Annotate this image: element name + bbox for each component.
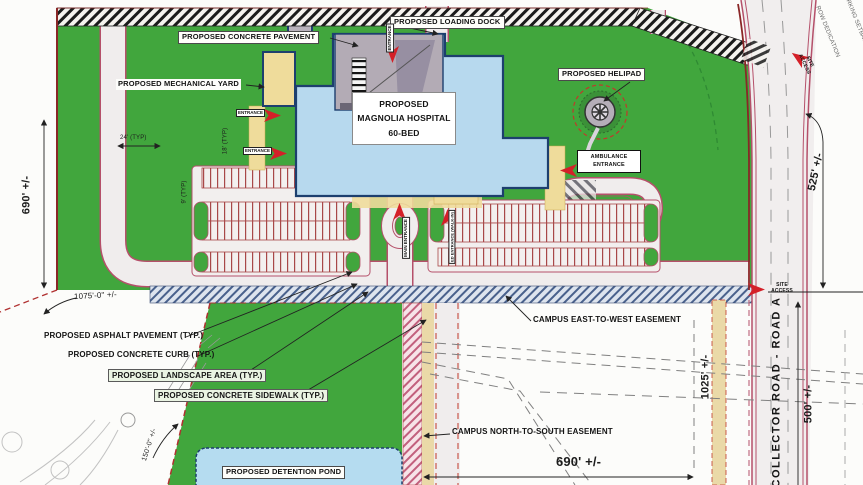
hospital-label-line3: 60-BED <box>353 126 455 140</box>
asphalt-pavement-label: PROPOSED ASPHALT PAVEMENT (TYP.) <box>44 331 203 340</box>
entrance-label-upper: ENTRANCE <box>236 109 265 117</box>
dim-stall-width: 9' (TYP) <box>182 180 189 203</box>
helipad-label: PROPOSED HELIPAD <box>558 68 645 81</box>
hospital-label-line2: MAGNOLIA HOSPITAL <box>353 111 455 125</box>
collector-road-label: COLLECTOR ROAD - ROAD A <box>771 297 784 485</box>
hospital-label-line1: PROPOSED <box>353 97 455 111</box>
loading-dock-entrance-label: ENTRANCE <box>386 23 394 52</box>
mechanical-yard <box>263 52 295 106</box>
north-south-easement-label: CAMPUS NORTH-TO-SOUTH EASEMENT <box>452 427 613 436</box>
dim-east-upper: 1025' +/- <box>700 355 713 400</box>
dim-west: 690' +/- <box>21 176 34 214</box>
concrete-pavement-label: PROPOSED CONCRETE PAVEMENT <box>178 31 319 44</box>
site-plan-canvas <box>0 0 863 485</box>
dim-south: 690' +/- <box>556 455 601 470</box>
loading-dock-label: PROPOSED LOADING DOCK <box>390 16 505 29</box>
concrete-curb-label: PROPOSED CONCRETE CURB (TYP.) <box>68 350 214 359</box>
detention-pond-label: PROPOSED DETENTION POND <box>222 466 345 479</box>
ed-entrance-label: ED ENTRANCE (WALK-IN) <box>448 210 455 264</box>
entrance-label-lower: ENTRANCE <box>243 147 272 155</box>
north-south-easement-hatch <box>403 303 422 485</box>
east-west-easement-label: CAMPUS EAST-TO-WEST EASEMENT <box>533 315 681 324</box>
ambulance-entrance-label: AMBULANCE ENTRANCE <box>577 150 641 173</box>
landscape-area-label: PROPOSED LANDSCAPE AREA (TYP.) <box>108 369 266 382</box>
dim-stall-depth: 18' (TYP) <box>223 128 230 155</box>
ambulance-entrance-line2: ENTRANCE <box>578 161 640 169</box>
parking-lot-east <box>428 200 660 272</box>
ambulance-entrance-line1: AMBULANCE <box>578 153 640 161</box>
hospital-label: PROPOSED MAGNOLIA HOSPITAL 60-BED <box>352 92 456 145</box>
concrete-sidewalk-label: PROPOSED CONCRETE SIDEWALK (TYP.) <box>154 389 328 402</box>
east-west-easement-hatch <box>150 286 753 303</box>
site-plan: PROPOSED CONCRETE PAVEMENT PROPOSED LOAD… <box>0 0 863 485</box>
site-access-label-mid: SITE ACCESS <box>769 282 795 294</box>
main-entrance-label: MAIN ENTRANCE <box>402 217 410 259</box>
mechanical-yard-label: PROPOSED MECHANICAL YARD <box>116 79 241 90</box>
south-road-strip <box>422 303 460 485</box>
dim-east-lower: 500' +/- <box>803 385 816 423</box>
dim-aisle: 24' (TYP) <box>120 135 147 142</box>
